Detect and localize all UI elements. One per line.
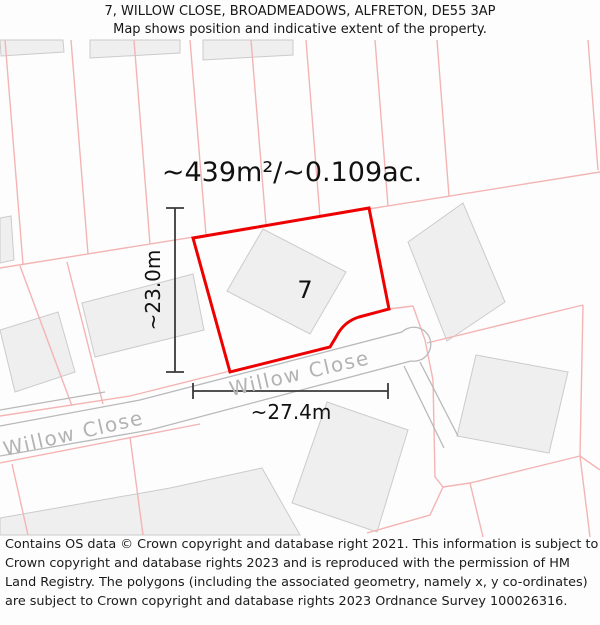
map-canvas: ~439m²/~0.109ac. 7 ~23.0m ~27.4m Willow … [0,0,600,625]
map-subtitle: Map shows position and indicative extent… [0,21,600,39]
plot-number-label: 7 [297,276,312,304]
area-label: ~439m²/~0.109ac. [162,157,422,188]
width-dimension-label: ~27.4m [251,400,332,424]
building [457,355,568,453]
building [0,216,14,263]
copyright-notice: Contains OS data © Crown copyright and d… [5,535,599,611]
property-map-page: 7, WILLOW CLOSE, BROADMEADOWS, ALFRETON,… [0,0,600,625]
property-address: 7, WILLOW CLOSE, BROADMEADOWS, ALFRETON,… [0,3,600,21]
map-header: 7, WILLOW CLOSE, BROADMEADOWS, ALFRETON,… [0,3,600,38]
height-dimension-label: ~23.0m [141,250,165,331]
